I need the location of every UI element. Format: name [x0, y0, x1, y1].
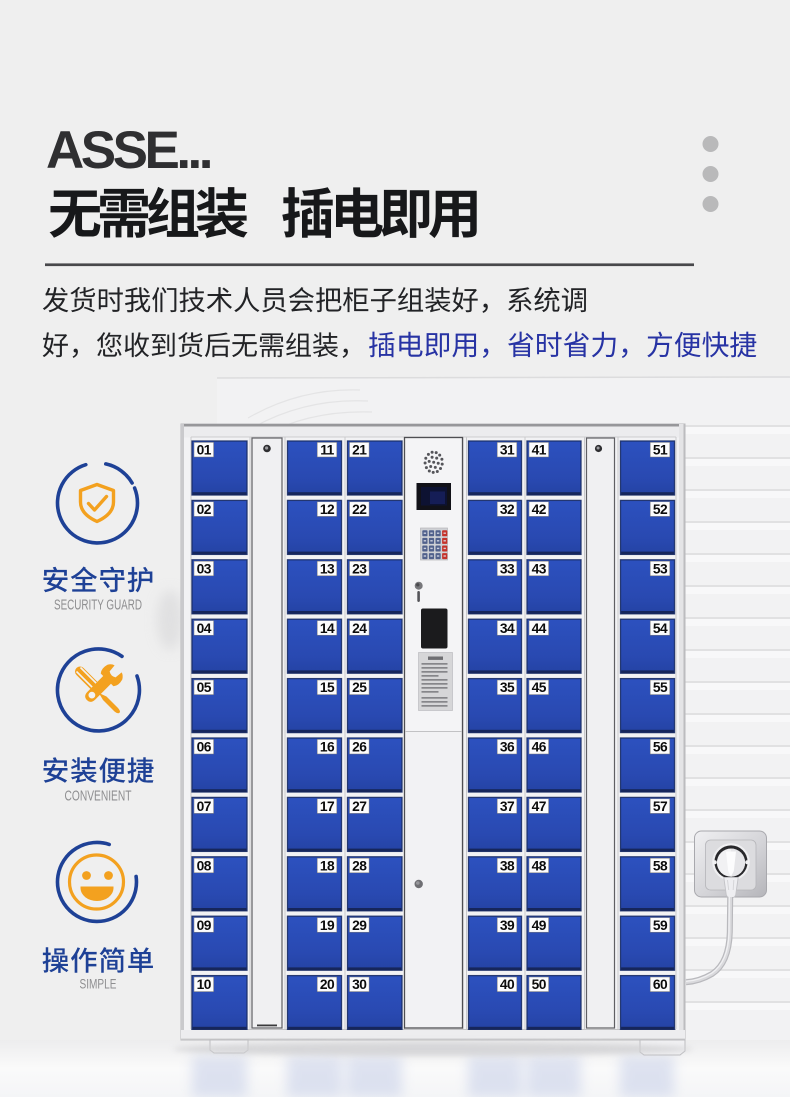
svg-text:21: 21 [352, 443, 367, 458]
svg-text:33: 33 [500, 561, 515, 576]
svg-text:08: 08 [197, 858, 212, 873]
svg-text:53: 53 [653, 561, 668, 576]
svg-text:41: 41 [532, 443, 547, 458]
svg-text:45: 45 [532, 680, 547, 695]
svg-text:07: 07 [197, 799, 212, 814]
svg-text:28: 28 [352, 858, 367, 873]
svg-text:57: 57 [653, 799, 668, 814]
svg-text:ASSE...: ASSE... [46, 121, 211, 180]
svg-text:51: 51 [653, 443, 668, 458]
svg-text:CONVENIENT: CONVENIENT [65, 789, 132, 805]
svg-text:20: 20 [320, 977, 335, 992]
svg-text:17: 17 [320, 799, 335, 814]
svg-text:15: 15 [320, 680, 335, 695]
svg-text:13: 13 [320, 561, 335, 576]
svg-text:39: 39 [500, 918, 515, 933]
svg-text:38: 38 [500, 858, 515, 873]
svg-text:31: 31 [500, 443, 515, 458]
svg-text:56: 56 [653, 740, 668, 755]
svg-text:32: 32 [500, 502, 515, 517]
svg-text:19: 19 [320, 918, 335, 933]
svg-text:09: 09 [197, 918, 212, 933]
svg-text:23: 23 [352, 561, 367, 576]
svg-text:27: 27 [352, 799, 367, 814]
svg-text:SECURITY GUARD: SECURITY GUARD [54, 598, 142, 614]
svg-text:49: 49 [532, 918, 547, 933]
svg-text:14: 14 [320, 621, 335, 636]
svg-text:50: 50 [532, 977, 547, 992]
svg-text:24: 24 [352, 621, 367, 636]
svg-text:05: 05 [197, 680, 212, 695]
svg-text:26: 26 [352, 740, 367, 755]
svg-text:30: 30 [352, 977, 367, 992]
svg-text:34: 34 [500, 621, 515, 636]
svg-text:12: 12 [320, 502, 335, 517]
svg-text:11: 11 [320, 443, 334, 458]
svg-text:48: 48 [532, 858, 547, 873]
svg-text:35: 35 [500, 680, 515, 695]
svg-text:42: 42 [532, 502, 547, 517]
svg-text:18: 18 [320, 858, 335, 873]
svg-text:29: 29 [352, 918, 367, 933]
svg-text:25: 25 [352, 680, 367, 695]
svg-text:02: 02 [197, 502, 212, 517]
svg-text:46: 46 [532, 740, 547, 755]
svg-text:SIMPLE: SIMPLE [80, 976, 117, 992]
svg-text:54: 54 [653, 621, 668, 636]
svg-text:52: 52 [653, 502, 668, 517]
svg-text:06: 06 [197, 740, 212, 755]
svg-text:10: 10 [197, 977, 212, 992]
svg-text:47: 47 [532, 799, 547, 814]
svg-text:36: 36 [500, 740, 515, 755]
svg-text:01: 01 [197, 443, 212, 458]
svg-text:22: 22 [352, 502, 367, 517]
svg-text:16: 16 [320, 740, 335, 755]
svg-text:37: 37 [500, 799, 515, 814]
svg-text:03: 03 [197, 561, 212, 576]
svg-text:60: 60 [653, 977, 668, 992]
svg-text:40: 40 [500, 977, 515, 992]
svg-text:55: 55 [653, 680, 668, 695]
svg-text:44: 44 [532, 621, 547, 636]
svg-text:04: 04 [197, 621, 212, 636]
svg-text:59: 59 [653, 918, 668, 933]
svg-text:43: 43 [532, 561, 547, 576]
svg-text:58: 58 [653, 858, 668, 873]
